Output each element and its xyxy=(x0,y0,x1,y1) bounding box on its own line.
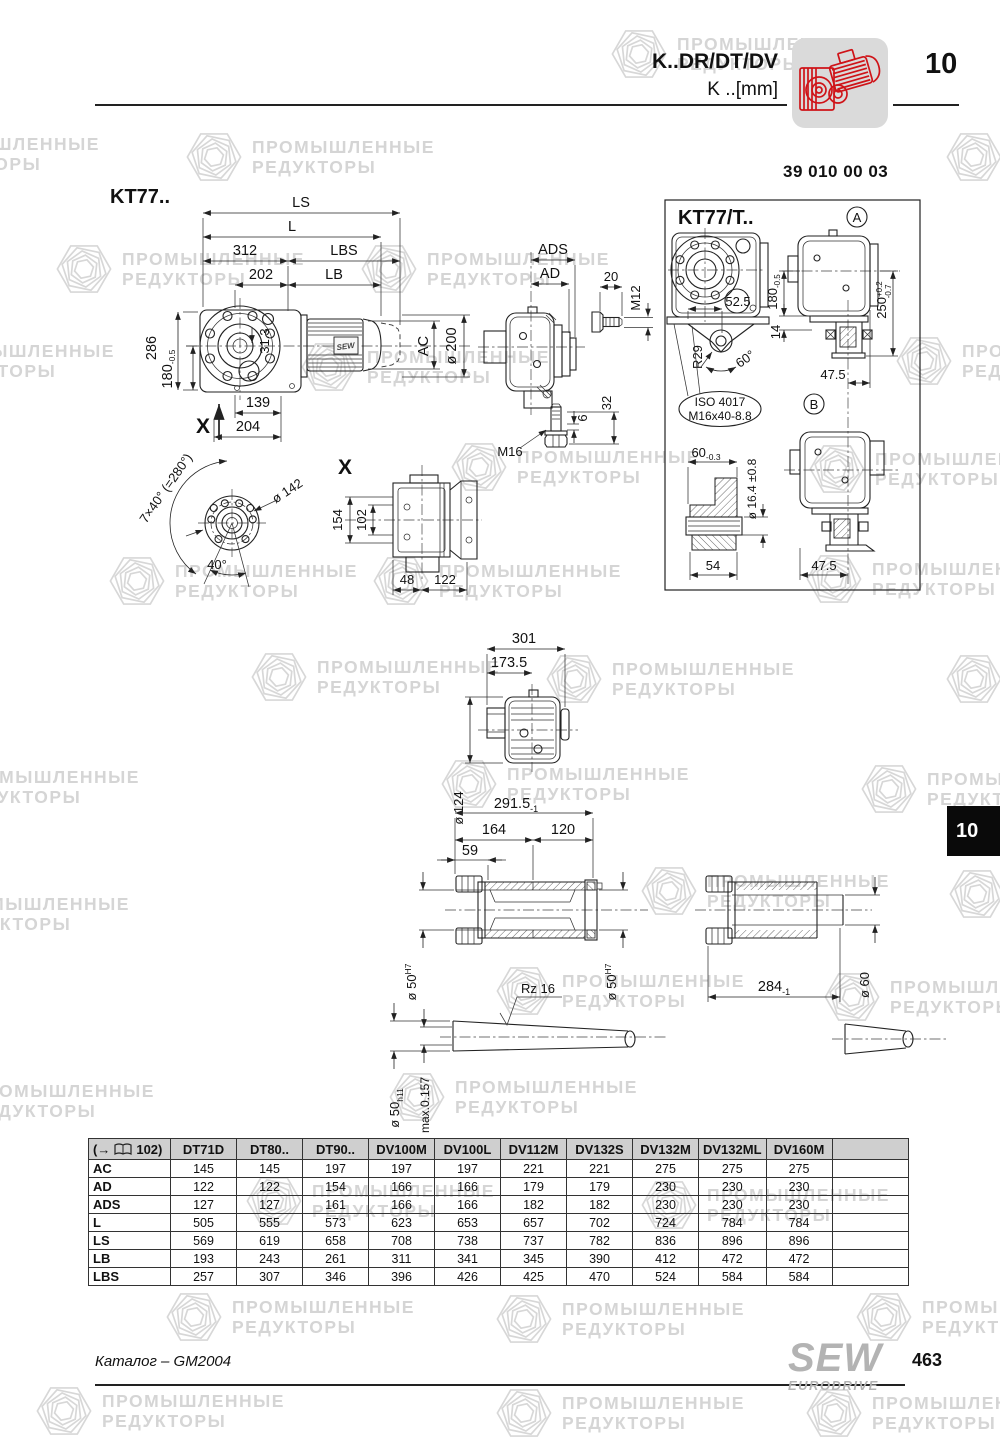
table-cell: 569 xyxy=(171,1232,237,1250)
table-cell: 122 xyxy=(171,1178,237,1196)
dim-47-5-b: 47.5 xyxy=(811,558,836,573)
surface-finish-label: Rz 16 xyxy=(521,981,555,996)
table-cell: 275 xyxy=(699,1160,767,1178)
row-label: LS xyxy=(89,1232,171,1250)
dim-50h7-right-val: ø 50 xyxy=(604,974,619,1000)
table-row: LB193243261311341345390412472472 xyxy=(89,1250,909,1268)
dim-291-5: 291.5-1 xyxy=(494,796,538,814)
column-header: DV132S xyxy=(567,1139,633,1160)
column-header-empty xyxy=(832,1139,908,1160)
row-label: AD xyxy=(89,1178,171,1196)
solid-shaft-view: ø 60 284-1 xyxy=(695,876,880,1002)
dim-59: 59 xyxy=(462,843,478,859)
dim-102: 102 xyxy=(354,509,369,531)
table-cell: 275 xyxy=(766,1160,832,1178)
page-title-unit: K ..[mm] xyxy=(707,79,778,101)
table-header-row: (→102)DT71DDT80..DT90..DV100MDV100LDV112… xyxy=(89,1139,909,1160)
m16-bolt: 6 32 M16 xyxy=(497,396,619,459)
table-cell: 166 xyxy=(369,1178,435,1196)
table-cell: 122 xyxy=(237,1178,303,1196)
dim-250-tol-a: +0.2 xyxy=(875,281,884,297)
page-number: 463 xyxy=(912,1350,942,1371)
dim-l: L xyxy=(288,219,296,235)
dim-50h7-left-val: ø 50 xyxy=(404,974,419,1000)
panel-title: KT77/T.. xyxy=(678,207,754,229)
gearmotor-icon-svg xyxy=(792,38,888,128)
dim-40deg: 40° xyxy=(207,557,227,572)
dim-14: 14 xyxy=(768,325,783,339)
table-cell: 505 xyxy=(171,1214,237,1232)
dim-60deg: 60° xyxy=(733,347,758,371)
dim-50h7-left-fit: H7 xyxy=(403,963,413,974)
table-cell: 390 xyxy=(567,1250,633,1268)
table-cell: 127 xyxy=(237,1196,303,1214)
dim-m16: M16 xyxy=(497,444,522,459)
table-cell: 182 xyxy=(501,1196,567,1214)
dim-20: 20 xyxy=(604,269,618,284)
row-label: LB xyxy=(89,1250,171,1268)
table-cell: 261 xyxy=(303,1250,369,1268)
ref-open: (→ xyxy=(93,1142,110,1157)
bottom-view: X 154 102 48 122 xyxy=(330,456,482,595)
column-header: DT71D xyxy=(171,1139,237,1160)
dim-52-5: 52.5 xyxy=(725,294,750,309)
column-header: DV132ML xyxy=(699,1139,767,1160)
column-header: DV160M xyxy=(766,1139,832,1160)
table-row: LS569619658708738737782836896896 xyxy=(89,1232,909,1250)
dim-31-3: 31.3 xyxy=(257,328,272,353)
dim-60-shaft: ø 60 xyxy=(857,972,872,998)
table-cell: 784 xyxy=(699,1214,767,1232)
table-cell: 166 xyxy=(369,1196,435,1214)
table-cell: 145 xyxy=(171,1160,237,1178)
dim-180-panel-val: 180 xyxy=(765,288,780,310)
sew-logo-text: SEW xyxy=(788,1338,882,1378)
table-cell: 221 xyxy=(567,1160,633,1178)
dim-lbs: LBS xyxy=(330,243,357,259)
table-cell: 182 xyxy=(567,1196,633,1214)
bottom-view-label: X xyxy=(338,456,352,479)
dim-ad: AD xyxy=(540,266,560,282)
dim-32: 32 xyxy=(599,396,614,410)
dim-164: 164 xyxy=(482,822,506,838)
table-row: AD122122154166166179179230230230 xyxy=(89,1178,909,1196)
dim-284-tol: -1 xyxy=(782,987,790,997)
table-cell: 307 xyxy=(237,1268,303,1286)
view-a-label: A xyxy=(853,210,862,225)
buffer-detail: 60-0.3 ø 16.4 ±0.8 54 xyxy=(686,445,768,580)
table-row: LBS257307346396426425470524584584 xyxy=(89,1268,909,1286)
table-cell: 584 xyxy=(766,1268,832,1286)
dim-r29: R29 xyxy=(690,345,705,369)
row-label: AC xyxy=(89,1160,171,1178)
dim-180-panel-tol: -0.5 xyxy=(773,274,782,288)
table-cell: 470 xyxy=(567,1268,633,1286)
table-cell: 724 xyxy=(633,1214,699,1232)
dim-48: 48 xyxy=(400,572,414,587)
column-header: DT90.. xyxy=(303,1139,369,1160)
column-header: DT80.. xyxy=(237,1139,303,1160)
table-cell: 896 xyxy=(699,1232,767,1250)
table-cell: 230 xyxy=(699,1196,767,1214)
eurodrive-logo-text: EURODRIVE xyxy=(788,1379,882,1392)
column-header: DV112M xyxy=(501,1139,567,1160)
table-cell: 524 xyxy=(633,1268,699,1286)
table-cell: 426 xyxy=(435,1268,501,1286)
dim-250-tol-b: -0.7 xyxy=(884,284,893,298)
brake-option-outline xyxy=(381,323,400,367)
table-cell: 166 xyxy=(435,1178,501,1196)
dim-284: 284-1 xyxy=(758,979,790,997)
dim-50h7-right-fit: H7 xyxy=(603,963,613,974)
table-cell: 197 xyxy=(435,1160,501,1178)
header-rule-left xyxy=(95,104,787,106)
page-edge-tab: 10 xyxy=(947,806,1000,856)
table-cell: 127 xyxy=(171,1196,237,1214)
iso-callout-line2: M16x40-8.8 xyxy=(688,409,752,423)
dim-124: ø 124 xyxy=(451,791,466,824)
ref-page: 102) xyxy=(136,1142,162,1157)
dim-120: 120 xyxy=(551,822,575,838)
main-view: KT77.. SEW LS xyxy=(110,186,472,442)
dimension-table: (→102)DT71DDT80..DT90..DV100MDV100LDV112… xyxy=(88,1138,909,1286)
table-cell: 584 xyxy=(699,1268,767,1286)
dim-ac: AC xyxy=(416,336,432,356)
table-cell: 784 xyxy=(766,1214,832,1232)
dim-139: 139 xyxy=(246,395,270,411)
table-cell: 472 xyxy=(699,1250,767,1268)
hollow-shaft-view: 291.5-1 164 120 59 ø 50H7 ø 50H7 xyxy=(403,796,648,1000)
table-cell: 425 xyxy=(501,1268,567,1286)
table-cell: 179 xyxy=(501,1178,567,1196)
dim-lb: LB xyxy=(325,267,343,283)
table-cell: 230 xyxy=(633,1178,699,1196)
dim-173-5: 173.5 xyxy=(491,655,527,671)
dim-m12: M12 xyxy=(628,285,643,310)
table-row: L505555573623653657702724784784 xyxy=(89,1214,909,1232)
table-cell: 230 xyxy=(633,1196,699,1214)
table-cell: 197 xyxy=(369,1160,435,1178)
dim-202: 202 xyxy=(249,267,273,283)
page-title-model: K..DR/DT/DV xyxy=(652,50,778,74)
view-x-arrow-label: X xyxy=(196,415,210,438)
gearmotor-icon xyxy=(792,38,888,128)
customer-shaft: Rz 16 ø 50h11 max.0.157 xyxy=(387,981,948,1133)
dim-16-4: ø 16.4 ±0.8 xyxy=(745,458,759,519)
column-header: DV132M xyxy=(633,1139,699,1160)
dim-180-tol: -0.5 xyxy=(167,349,177,364)
table-cell: 472 xyxy=(766,1250,832,1268)
page-edge-tab-label: 10 xyxy=(956,820,978,843)
dim-50h11: ø 50h11 xyxy=(387,1088,405,1128)
table-cell-empty xyxy=(832,1214,908,1232)
section-number: 10 xyxy=(925,48,957,81)
row-label: L xyxy=(89,1214,171,1232)
table-cell-empty xyxy=(832,1178,908,1196)
dim-6: 6 xyxy=(575,414,590,421)
view-b-label: B xyxy=(810,397,819,412)
dim-180: 180-0.5 xyxy=(160,349,177,388)
row-label: LBS xyxy=(89,1268,171,1286)
dim-bolt-pattern: 7×40° (=280°) xyxy=(136,451,195,526)
dim-54: 54 xyxy=(706,558,720,573)
dim-50h7-left: ø 50H7 xyxy=(403,963,419,1000)
table-cell: 396 xyxy=(369,1268,435,1286)
table-cell: 230 xyxy=(699,1178,767,1196)
table-ref-cell: (→102) xyxy=(89,1139,171,1160)
table-cell: 275 xyxy=(633,1160,699,1178)
dim-180-val: 180 xyxy=(160,364,176,388)
table-cell: 230 xyxy=(766,1178,832,1196)
table-cell: 708 xyxy=(369,1232,435,1250)
sew-eurodrive-logo: SEW EURODRIVE xyxy=(788,1338,882,1392)
table-cell: 573 xyxy=(303,1214,369,1232)
dim-154: 154 xyxy=(330,509,345,531)
table-cell: 619 xyxy=(237,1232,303,1250)
m12-bolt: 20 M12 xyxy=(592,269,653,341)
table-cell: 782 xyxy=(567,1232,633,1250)
dim-60: 60-0.3 xyxy=(691,445,720,462)
x-flange-view: 7×40° (=280°) ø 142 40° xyxy=(136,451,305,587)
dim-291-5-val: 291.5 xyxy=(494,796,530,812)
table-cell: 653 xyxy=(435,1214,501,1232)
dim-291-5-tol: -1 xyxy=(530,804,538,814)
kt77t-panel: KT77/T.. A 52.5 R29 60° xyxy=(665,200,920,590)
table-cell: 166 xyxy=(435,1196,501,1214)
dim-47-5-a: 47.5 xyxy=(820,367,845,382)
table-row: AC145145197197197221221275275275 xyxy=(89,1160,909,1178)
table-cell: 412 xyxy=(633,1250,699,1268)
table-cell: 896 xyxy=(766,1232,832,1250)
table-cell: 623 xyxy=(369,1214,435,1232)
table-cell-empty xyxy=(832,1250,908,1268)
dim-250: 250+0.2-0.7 xyxy=(874,281,893,319)
table-cell: 145 xyxy=(237,1160,303,1178)
dim-60-val: 60 xyxy=(691,445,705,460)
table-cell: 658 xyxy=(303,1232,369,1250)
table-cell: 161 xyxy=(303,1196,369,1214)
table-cell-empty xyxy=(832,1268,908,1286)
column-header: DV100M xyxy=(369,1139,435,1160)
table-cell-empty xyxy=(832,1196,908,1214)
dim-ads: ADS xyxy=(538,242,568,258)
table-cell: 257 xyxy=(171,1268,237,1286)
table-cell: 657 xyxy=(501,1214,567,1232)
dim-284-val: 284 xyxy=(758,979,782,995)
row-label: ADS xyxy=(89,1196,171,1214)
dim-50h11-fit: h11 xyxy=(395,1088,405,1102)
dim-301: 301 xyxy=(512,631,536,647)
table-cell: 221 xyxy=(501,1160,567,1178)
dim-250-val: 250 xyxy=(874,297,889,319)
table-cell: 346 xyxy=(303,1268,369,1286)
header-rule-right xyxy=(893,104,959,106)
table-cell: 737 xyxy=(501,1232,567,1250)
dim-200: ø 200 xyxy=(444,327,460,364)
dim-60-tol: -0.3 xyxy=(706,452,721,462)
table-cell: 345 xyxy=(501,1250,567,1268)
main-view-title: KT77.. xyxy=(110,186,170,208)
dim-ls: LS xyxy=(292,195,310,211)
dim-312: 312 xyxy=(233,243,257,259)
table-cell: 836 xyxy=(633,1232,699,1250)
dim-50h11-val: ø 50 xyxy=(387,1102,402,1128)
table-cell: 555 xyxy=(237,1214,303,1232)
table-cell: 179 xyxy=(567,1178,633,1196)
table-cell: 702 xyxy=(567,1214,633,1232)
table-cell: 154 xyxy=(303,1178,369,1196)
footer-rule xyxy=(95,1384,905,1386)
table-cell: 738 xyxy=(435,1232,501,1250)
table-cell-empty xyxy=(832,1160,908,1178)
table-cell: 197 xyxy=(303,1160,369,1178)
drawing-number: 39 010 00 03 xyxy=(783,162,888,182)
table-cell-empty xyxy=(832,1232,908,1250)
table-cell: 311 xyxy=(369,1250,435,1268)
dim-204: 204 xyxy=(236,419,260,435)
table-cell: 341 xyxy=(435,1250,501,1268)
dim-122: 122 xyxy=(434,572,456,587)
dim-runout: max.0.157 xyxy=(418,1077,432,1133)
table-cell: 193 xyxy=(171,1250,237,1268)
column-header: DV100L xyxy=(435,1139,501,1160)
dim-50h7-right: ø 50H7 xyxy=(603,963,619,1000)
iso-callout-line1: ISO 4017 xyxy=(695,395,746,409)
dim-286: 286 xyxy=(144,336,160,360)
end-view: ADS AD 20 M12 xyxy=(478,242,653,459)
table-row: ADS127127161166166182182230230230 xyxy=(89,1196,909,1214)
footer-catalog: Каталог – GM2004 xyxy=(95,1353,231,1370)
book-icon xyxy=(114,1143,132,1156)
table-cell: 230 xyxy=(766,1196,832,1214)
table-cell: 243 xyxy=(237,1250,303,1268)
